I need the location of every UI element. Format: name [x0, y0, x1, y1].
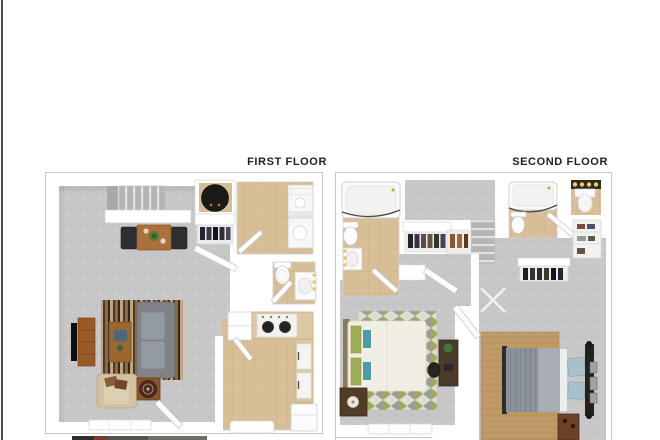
green-pillow	[351, 358, 361, 385]
burner	[280, 322, 291, 333]
dining-chair	[171, 227, 187, 249]
hall-closet	[403, 222, 451, 252]
wall	[471, 254, 479, 306]
vanity-lights	[573, 182, 577, 186]
closet-shelf	[195, 214, 235, 225]
closet-shelf	[518, 258, 570, 266]
floorplan-gallery-image: FIRST FLOOR SECOND FLOOR	[0, 0, 660, 440]
nightstand	[558, 414, 579, 440]
bed2-sheet	[538, 348, 560, 412]
faucet	[392, 189, 395, 192]
blue-pillow	[567, 357, 585, 376]
accent-pillow	[363, 362, 371, 380]
blue-pillow	[568, 382, 586, 400]
throw-pillow	[114, 379, 127, 390]
refrigerator	[291, 404, 317, 431]
closet-shelf	[403, 222, 451, 232]
linen-closet	[573, 220, 601, 258]
book	[114, 330, 127, 341]
second-floor-label: SECOND FLOOR	[512, 156, 608, 168]
dining-chair	[121, 227, 137, 249]
half-bathroom	[271, 262, 316, 304]
side-table	[137, 378, 160, 400]
hanging-clothes	[408, 234, 413, 248]
wall	[471, 337, 479, 440]
vanity-lights	[312, 273, 315, 276]
stair-landing	[405, 180, 495, 220]
sofa	[137, 302, 175, 378]
dining-set	[121, 225, 187, 250]
first-floor-plan	[45, 172, 323, 440]
water-heater	[202, 185, 229, 212]
coffee-table	[109, 322, 131, 362]
bathroom-1	[342, 182, 400, 296]
vanity-nook	[571, 180, 601, 215]
mattress-edge	[560, 349, 567, 411]
sofa-cushion	[141, 341, 165, 369]
desk-chair	[428, 363, 440, 378]
small-plant	[117, 345, 123, 351]
armchair	[97, 374, 137, 408]
sofa-cushion	[141, 312, 165, 340]
next-gallery-image-edge	[72, 436, 207, 440]
hanging-clothes	[200, 227, 205, 240]
window	[368, 424, 432, 434]
window	[89, 420, 151, 430]
stair-half-wall	[105, 210, 191, 223]
burner	[263, 322, 274, 333]
water-heater-closet	[195, 180, 235, 214]
wall	[399, 265, 425, 280]
accent-pillow	[363, 330, 371, 348]
bedroom2-wardrobe	[518, 258, 570, 281]
desk-plant	[444, 344, 453, 353]
kitchen	[215, 312, 317, 433]
coat-closet	[195, 214, 235, 244]
hanging-clothes	[523, 268, 528, 280]
second-floor-plan	[335, 172, 612, 440]
laundry-room	[237, 182, 313, 254]
wall-art	[590, 362, 597, 403]
kitchen-wall	[215, 336, 223, 430]
left-edge-line	[1, 0, 3, 440]
tv-console	[71, 318, 95, 366]
faucet	[548, 187, 551, 190]
first-floor-label: FIRST FLOOR	[247, 156, 327, 168]
green-pillow	[351, 326, 361, 353]
hall-closet-small	[447, 230, 469, 254]
tv	[71, 323, 77, 361]
kitchen-sink	[230, 421, 274, 433]
vanity-lights	[343, 249, 346, 252]
